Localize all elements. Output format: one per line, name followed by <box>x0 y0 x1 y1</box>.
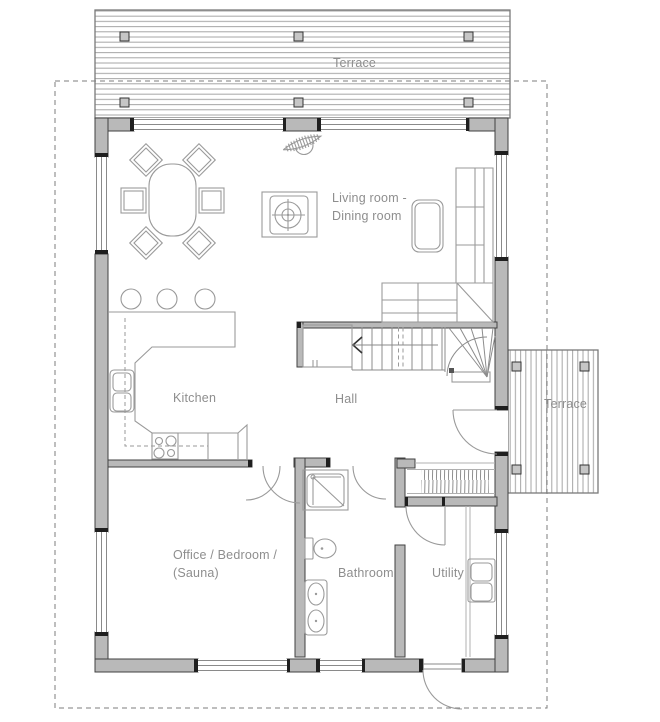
terrace-post <box>512 362 521 371</box>
label-utility: Utility <box>432 564 464 582</box>
terrace-post <box>580 362 589 371</box>
terrace-post <box>120 98 129 107</box>
newel-post <box>449 368 454 373</box>
label-terrace-right: Terrace <box>544 395 587 413</box>
terrace-post <box>464 98 473 107</box>
terrace-post <box>580 465 589 474</box>
back-door-swing <box>423 670 462 709</box>
label-bathroom: Bathroom <box>338 564 394 582</box>
label-hall: Hall <box>335 390 357 408</box>
terrace-post <box>512 465 521 474</box>
terrace-right-deck <box>508 350 598 493</box>
label-office: Office / Bedroom / (Sauna) <box>173 546 277 582</box>
terrace-post <box>120 32 129 41</box>
label-terrace-top: Terrace <box>333 54 376 72</box>
terrace-top-deck <box>95 10 510 118</box>
doormat <box>421 470 489 494</box>
label-kitchen: Kitchen <box>173 389 216 407</box>
label-living-dining: Living room - Dining room <box>332 189 407 225</box>
floor-plan-drawing <box>0 0 660 722</box>
terrace-post <box>294 98 303 107</box>
terrace-post <box>294 32 303 41</box>
floor-plan: Terrace Living room - Dining room Kitche… <box>0 0 660 722</box>
terrace-post <box>464 32 473 41</box>
